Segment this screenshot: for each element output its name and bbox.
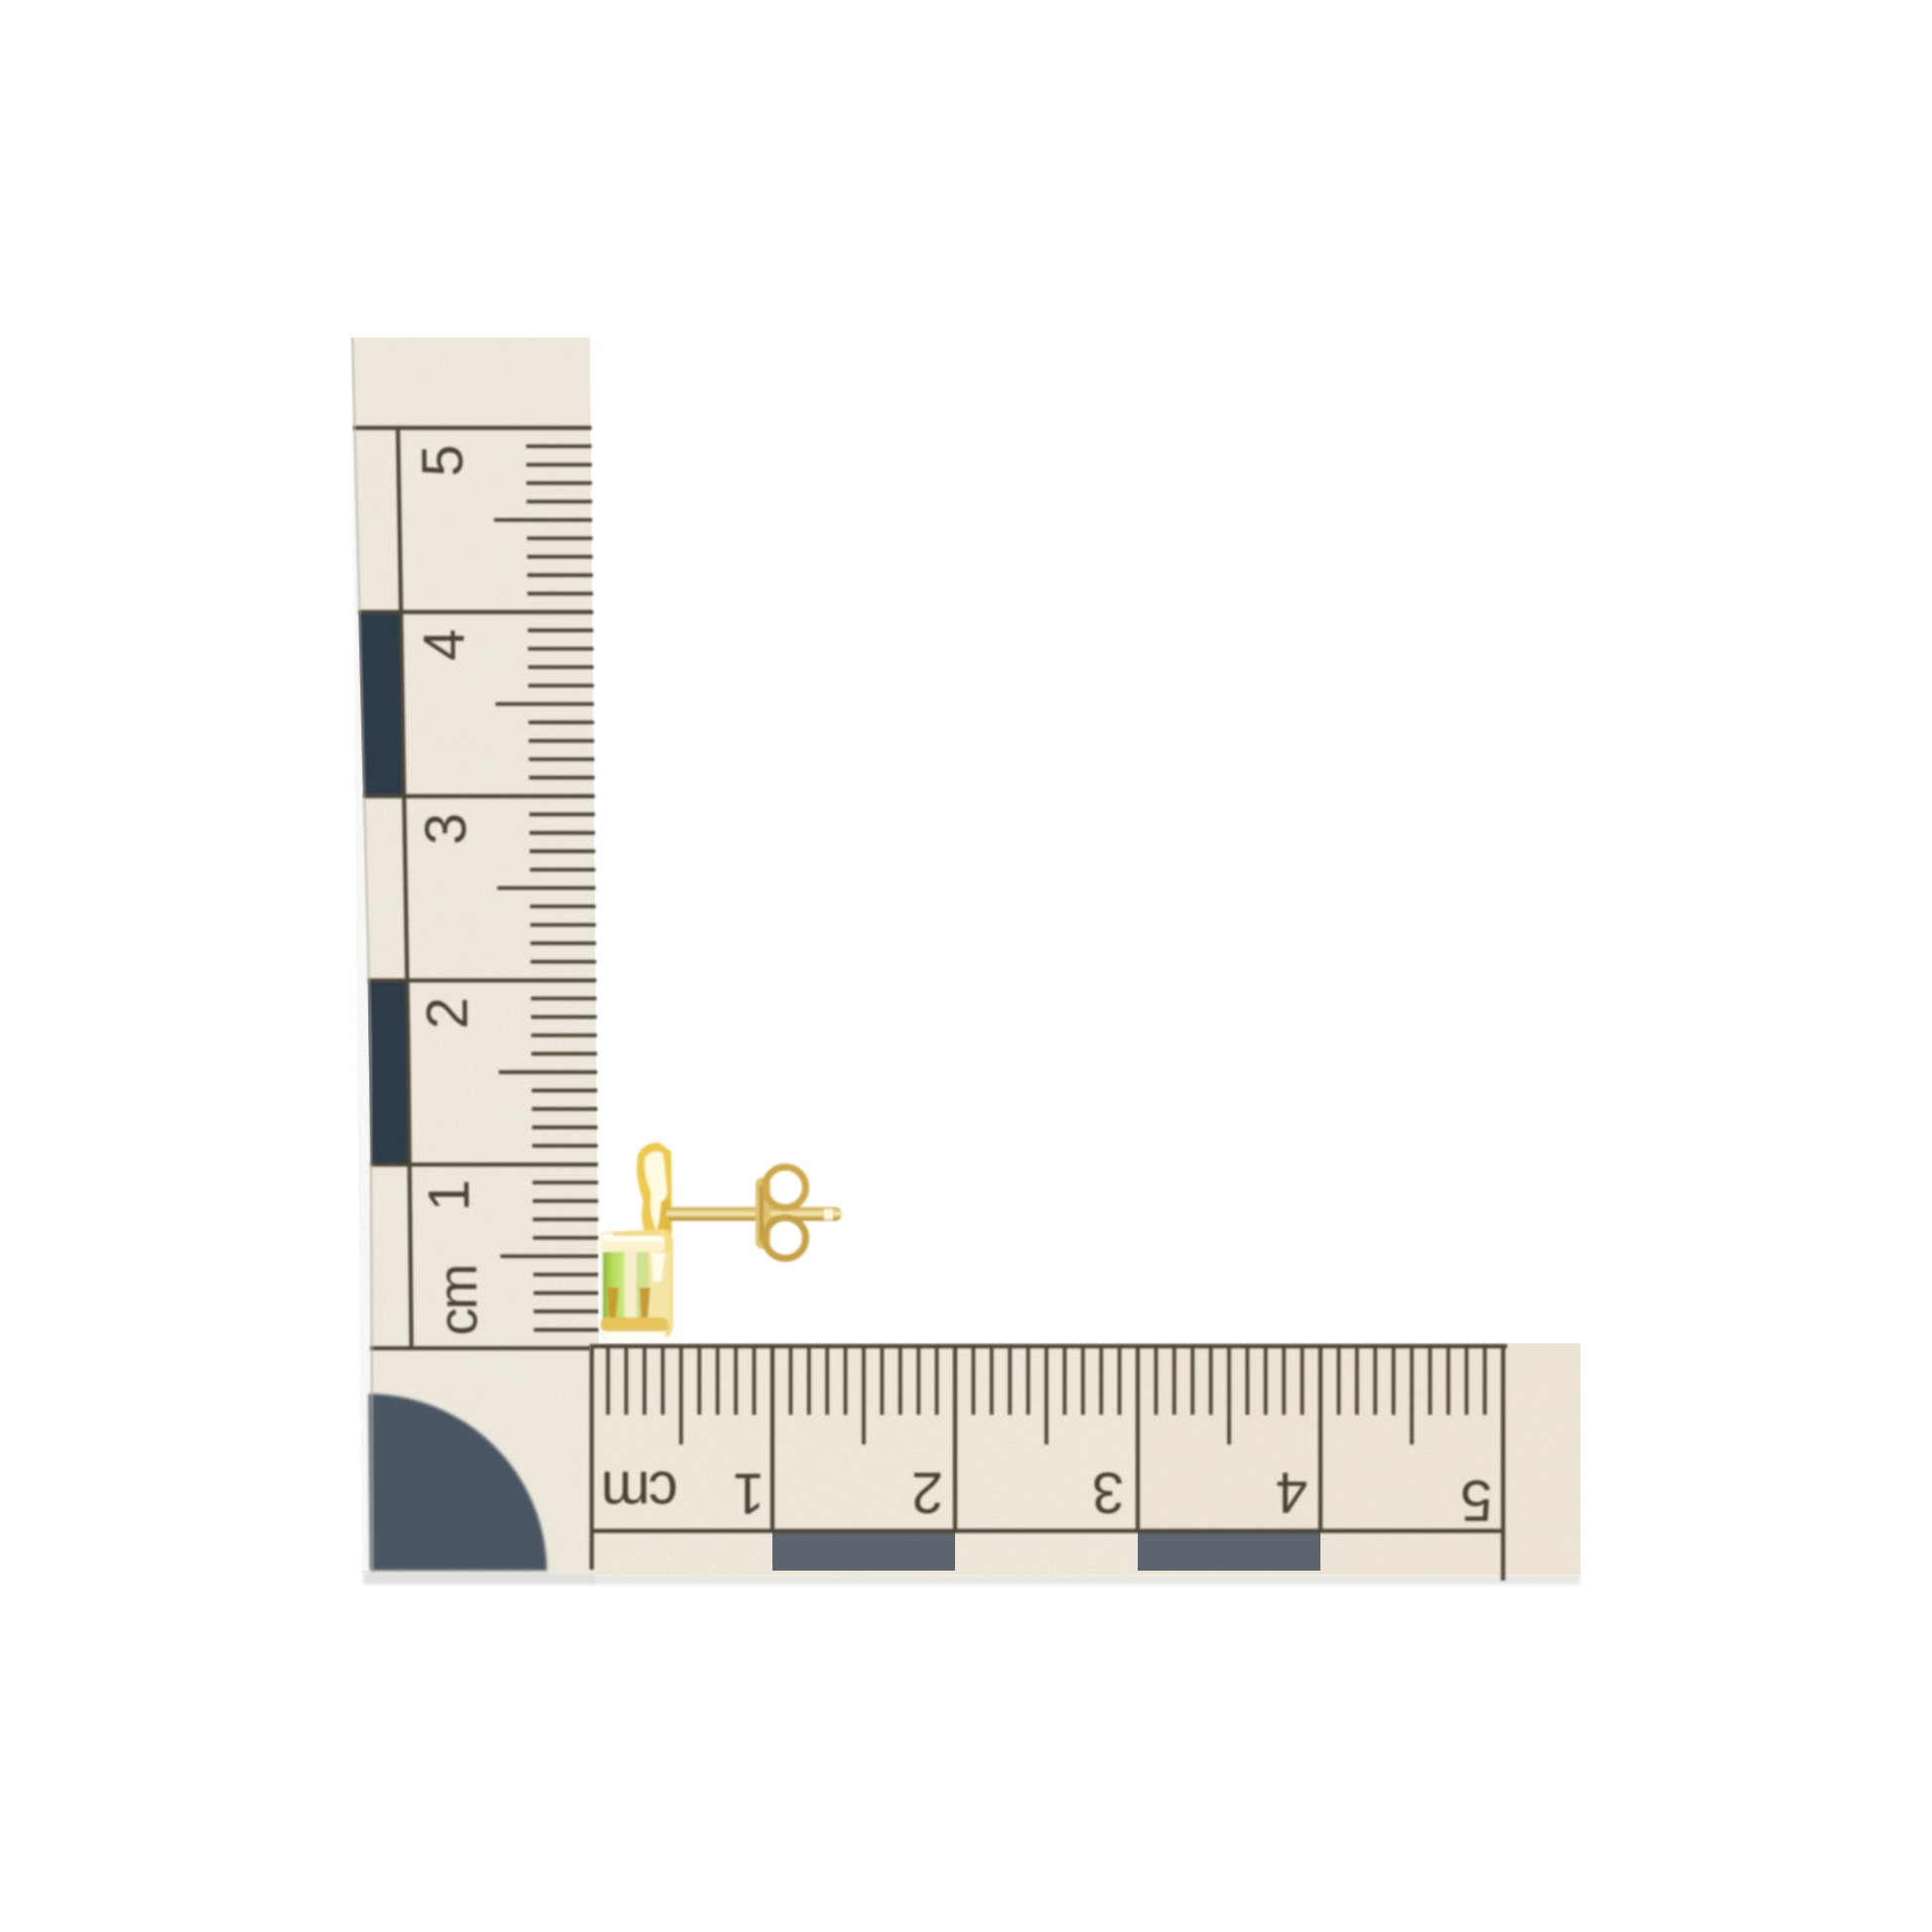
svg-text:cm: cm <box>426 1266 489 1336</box>
svg-text:2: 2 <box>415 997 480 1029</box>
svg-text:4: 4 <box>1276 1460 1308 1525</box>
svg-text:1: 1 <box>733 1461 764 1526</box>
svg-text:1: 1 <box>417 1179 482 1211</box>
svg-text:5: 5 <box>1460 1468 1492 1533</box>
svg-text:3: 3 <box>414 813 479 845</box>
svg-text:3: 3 <box>1092 1460 1124 1525</box>
svg-text:5: 5 <box>410 445 475 477</box>
svg-text:2: 2 <box>911 1460 943 1525</box>
svg-text:cm: cm <box>603 1459 678 1526</box>
svg-text:4: 4 <box>412 628 477 660</box>
